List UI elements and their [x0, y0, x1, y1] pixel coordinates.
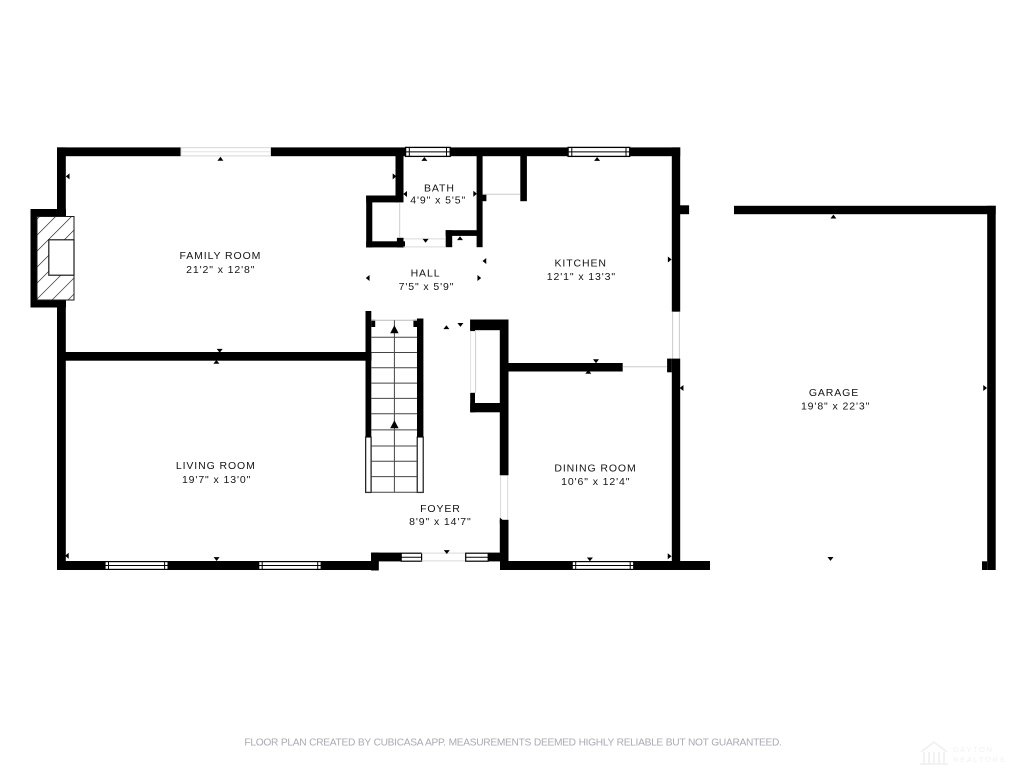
svg-text:4'9" x 5'5": 4'9" x 5'5": [410, 195, 466, 207]
svg-text:REALTORS: REALTORS: [953, 755, 1006, 764]
svg-text:LIVING ROOM: LIVING ROOM: [176, 460, 256, 472]
svg-text:10'6" x 12'4": 10'6" x 12'4": [561, 476, 630, 488]
svg-text:12'1" x 13'3": 12'1" x 13'3": [547, 271, 616, 283]
svg-text:GARAGE: GARAGE: [809, 387, 859, 399]
svg-text:8'9" x 14'7": 8'9" x 14'7": [409, 516, 472, 528]
svg-text:19'8" x 22'3": 19'8" x 22'3": [801, 401, 870, 413]
svg-text:HALL: HALL: [411, 268, 441, 280]
svg-text:7'5" x 5'9": 7'5" x 5'9": [399, 281, 455, 293]
svg-text:DAYTON: DAYTON: [953, 745, 994, 754]
svg-text:KITCHEN: KITCHEN: [555, 257, 607, 269]
svg-text:FLOOR PLAN CREATED BY CUBICASA: FLOOR PLAN CREATED BY CUBICASA APP. MEAS…: [244, 738, 781, 749]
svg-text:FOYER: FOYER: [420, 503, 461, 515]
svg-text:FAMILY ROOM: FAMILY ROOM: [179, 250, 261, 262]
svg-text:DINING ROOM: DINING ROOM: [554, 463, 636, 475]
svg-text:21'2" x 12'8": 21'2" x 12'8": [186, 264, 255, 276]
svg-text:BATH: BATH: [424, 183, 455, 195]
svg-text:19'7" x 13'0": 19'7" x 13'0": [182, 474, 251, 486]
